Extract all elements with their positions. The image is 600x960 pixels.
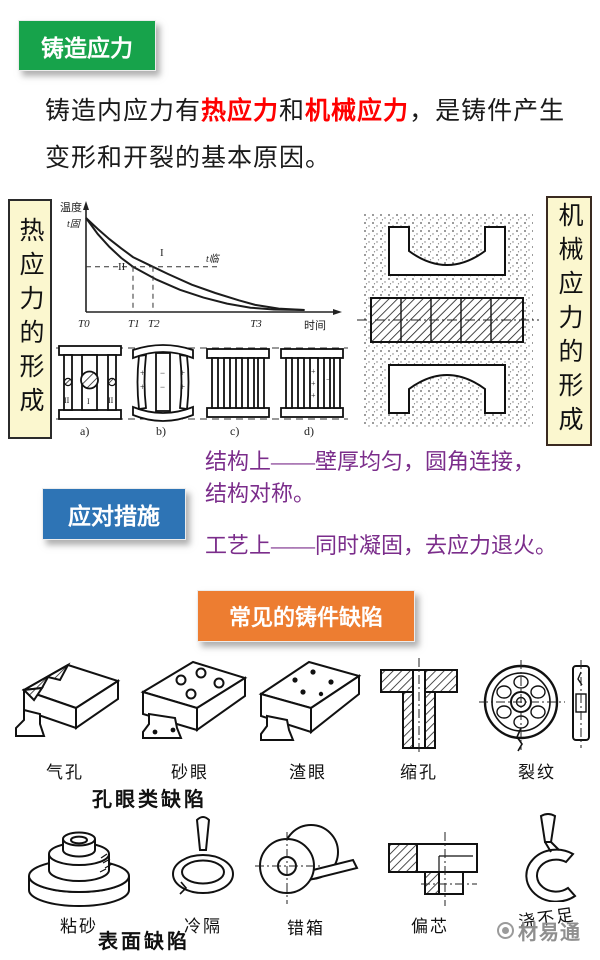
gas-holes-figure: [4, 652, 126, 756]
defect-crack: 裂纹: [476, 652, 598, 783]
intro-pre: 铸造内应力有: [45, 97, 201, 125]
defect-misrun: 浇不足: [494, 812, 598, 929]
surface-defects-group-label: 表面缺陷: [98, 925, 190, 954]
frame-a-mark-left: II: [64, 396, 70, 405]
defect-label: 错箱: [287, 914, 325, 939]
svg-text:+: +: [180, 382, 185, 392]
defect-label: 粘砂: [60, 912, 98, 937]
svg-text:+: +: [311, 379, 316, 388]
svg-text:+: +: [140, 368, 145, 378]
x-axis-arrow: [333, 309, 342, 315]
defect-shrinkage-hole: 缩孔: [368, 652, 470, 783]
tick-t3: T3: [250, 318, 262, 330]
process-measure-line: 工艺上——同时凝固，去应力退火。: [205, 530, 597, 562]
defect-sand-holes: 砂眼: [128, 650, 252, 783]
defect-mold-shift: 错箱: [252, 810, 360, 939]
casting-stress-badge: 铸造应力: [18, 20, 156, 71]
intro-mid: 和: [279, 97, 305, 125]
frame-b-caption: b): [156, 424, 166, 438]
tick-t2: T2: [148, 318, 160, 330]
casting-stress-badge-label: 铸造应力: [41, 29, 133, 63]
defect-gas-holes: 气孔: [2, 652, 128, 783]
frame-c-caption: c): [230, 424, 239, 438]
watermark-logo-icon: [497, 922, 514, 939]
shrinkage-hole-figure: [369, 652, 469, 756]
svg-text:+: +: [140, 382, 145, 392]
thermal-stress-panel-label: 热应力的形成: [8, 199, 52, 439]
defect-label: 渣眼: [289, 758, 327, 783]
mechanical-stress-diagram: [355, 205, 541, 435]
slag-holes-figure: [253, 650, 363, 756]
sand-burning-figure: [13, 812, 145, 910]
stress-frame-diagrams: II I II ++ −− ++: [56, 342, 348, 438]
t-solid-annotation: t固: [67, 219, 82, 230]
countermeasures-text: 结构上——壁厚均匀，圆角连接， 结构对称。 工艺上——同时凝固，去应力退火。: [205, 446, 597, 562]
frame-a: [59, 346, 121, 419]
t-critical-annotation: t临: [206, 253, 221, 265]
defect-sand-burning: 粘砂: [12, 812, 146, 937]
defect-label: 气孔: [46, 758, 84, 783]
cold-shut-figure: [157, 812, 249, 910]
defect-core-shift: 偏芯: [378, 822, 482, 937]
defect-label: 砂眼: [171, 758, 209, 783]
tick-t1: T1: [128, 318, 140, 330]
defect-cold-shut: 冷隔: [156, 812, 250, 937]
cooling-curve-chart: 温度 时间 t固 t临 I II T0 T1 T2 T3: [56, 198, 348, 344]
svg-text:+: +: [311, 367, 316, 376]
frame-c: [207, 349, 269, 417]
intro-mechanical-stress: 机械应力: [305, 97, 409, 125]
x-axis-label: 时间: [304, 319, 326, 332]
svg-text:−: −: [326, 375, 331, 384]
structure-measure-line: 结构上——壁厚均匀，圆角连接， 结构对称。: [205, 446, 597, 510]
curve2-label: II: [118, 261, 126, 273]
intro-paragraph: 铸造内应力有热应力和机械应力，是铸件产生变形和开裂的基本原因。: [45, 88, 567, 182]
common-defects-badge-label: 常见的铸件缺陷: [229, 600, 383, 632]
curve1-label: I: [160, 247, 164, 259]
countermeasures-badge: 应对措施: [42, 488, 186, 540]
frame-d-caption: d): [304, 424, 314, 438]
core-shift-figure: [379, 822, 481, 910]
defect-label: 裂纹: [518, 758, 556, 783]
svg-text:−: −: [160, 368, 165, 378]
y-axis-arrow: [83, 201, 89, 210]
watermark-text: 材易通: [518, 916, 581, 945]
hole-defects-group-label: 孔眼类缺陷: [92, 783, 207, 812]
watermark: 材易通: [497, 916, 581, 945]
intro-thermal-stress: 热应力: [201, 97, 279, 125]
svg-text:−: −: [160, 382, 165, 392]
sand-holes-figure: [129, 650, 251, 756]
misrun-figure: [495, 812, 597, 902]
crack-figure: [477, 652, 597, 756]
slide-page: 铸造应力 铸造内应力有热应力和机械应力，是铸件产生变形和开裂的基本原因。 热应力…: [0, 0, 600, 960]
common-defects-badge: 常见的铸件缺陷: [197, 590, 415, 642]
countermeasures-badge-label: 应对措施: [68, 497, 160, 531]
tick-t0: T0: [78, 318, 90, 330]
svg-text:+: +: [180, 368, 185, 378]
frame-a-mark-right: II: [108, 396, 114, 405]
svg-text:+: +: [311, 391, 316, 400]
defect-label: 偏芯: [411, 912, 449, 937]
defect-slag-holes: 渣眼: [252, 650, 364, 783]
mold-shift-figure: [253, 810, 359, 912]
y-axis-label: 温度: [60, 200, 82, 214]
defect-label: 缩孔: [400, 758, 438, 783]
frame-a-caption: a): [80, 424, 89, 438]
frame-a-mark-mid: I: [87, 397, 90, 406]
mechanical-stress-panel-label: 机械应力的形成: [546, 196, 592, 446]
